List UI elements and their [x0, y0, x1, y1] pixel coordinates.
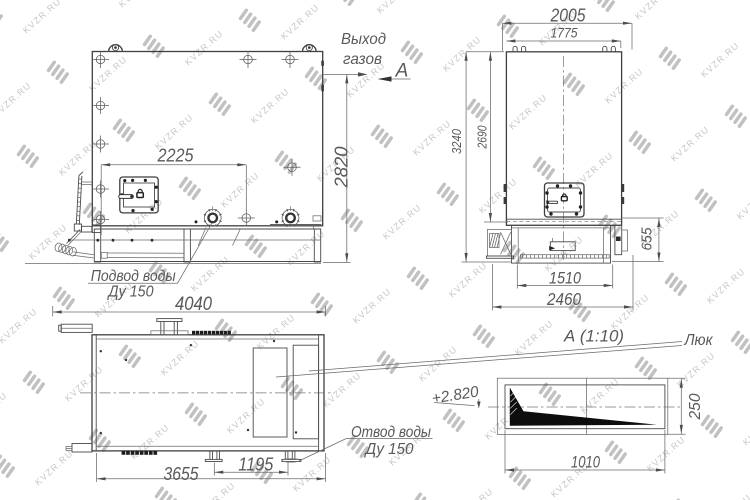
svg-text:3655: 3655 [164, 463, 200, 484]
svg-text:2820: 2820 [331, 147, 351, 189]
svg-text:2005: 2005 [550, 5, 587, 25]
svg-text:Выход: Выход [341, 31, 386, 48]
svg-text:2460: 2460 [546, 289, 581, 309]
svg-text:Ду 150: Ду 150 [364, 441, 414, 458]
svg-text:250: 250 [687, 393, 704, 420]
svg-text:А: А [395, 61, 409, 82]
svg-text:2225: 2225 [157, 146, 195, 166]
svg-text:Люк: Люк [684, 332, 714, 349]
svg-text:А (1:10): А (1:10) [563, 328, 624, 346]
svg-text:655: 655 [639, 227, 656, 251]
svg-text:1775: 1775 [551, 25, 578, 41]
svg-text:3240: 3240 [449, 128, 464, 154]
svg-text:1510: 1510 [549, 268, 581, 287]
svg-text:1010: 1010 [571, 452, 600, 471]
svg-text:1195: 1195 [238, 455, 274, 475]
svg-text:2690: 2690 [474, 125, 489, 149]
svg-text:Ду 150: Ду 150 [107, 283, 154, 300]
svg-text:Отвод воды: Отвод воды [351, 424, 432, 441]
svg-text:4040: 4040 [175, 294, 212, 315]
svg-text:газов: газов [343, 51, 382, 68]
